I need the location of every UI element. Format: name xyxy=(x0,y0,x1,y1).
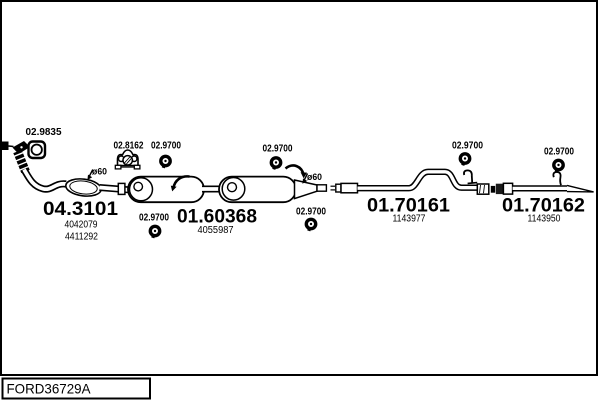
rubber-hanger-icon xyxy=(115,150,140,169)
clamp-icon xyxy=(161,156,170,168)
joint-clamp-block xyxy=(491,186,495,193)
hanger-hook-icon xyxy=(464,170,477,183)
manifold-stub xyxy=(2,142,9,151)
oem-number-label: 4055987 xyxy=(198,225,234,236)
flared-end xyxy=(477,184,489,194)
oem-number-label: 1143977 xyxy=(393,214,426,225)
intermediate-pipe xyxy=(331,170,489,194)
clamp-label: 02.9700 xyxy=(263,144,293,155)
clamp-label: 02.9700 xyxy=(544,147,574,158)
diameter-label: ø60 xyxy=(92,167,107,178)
center-muffler xyxy=(128,177,326,203)
sleeve-collar xyxy=(496,184,504,194)
hanger-label: 02.8162 xyxy=(114,141,144,152)
exhaust-parts-drawing: 02.9835 02.8162 02.9700 02.9700 02.9700 … xyxy=(0,0,600,400)
clamp-label: 02.9700 xyxy=(296,207,326,218)
clamp-label: 02.9700 xyxy=(151,141,181,152)
assembly-arrow-icon xyxy=(286,166,308,179)
clamp-icon xyxy=(150,226,159,238)
diameter-label: ø60 xyxy=(307,172,322,183)
clamp-icon xyxy=(271,158,280,170)
hanger-hook-icon xyxy=(553,172,561,185)
gasket-icon xyxy=(29,142,46,159)
coupling-sleeve xyxy=(341,183,358,192)
oem-number-label: 1143950 xyxy=(528,214,561,225)
clamp-label: 02.9700 xyxy=(452,141,483,152)
tail-pipe xyxy=(491,172,594,194)
oem-number-label: 4411292 xyxy=(65,232,98,243)
part-id-label: 04.3101 xyxy=(43,199,118,220)
slip-collar xyxy=(118,183,125,194)
oem-number-label: 4042079 xyxy=(65,220,98,231)
code-box: FORD36729A xyxy=(3,379,151,399)
clamp-icon xyxy=(306,219,315,231)
clamp-label: 02.9700 xyxy=(139,213,169,224)
gasket-label: 02.9835 xyxy=(26,127,62,138)
clamp-icon xyxy=(554,160,563,172)
clamp-icon xyxy=(460,154,469,166)
drawing-code-label: FORD36729A xyxy=(7,381,92,397)
exhaust-diagram: 02.9835 02.8162 02.9700 02.9700 02.9700 … xyxy=(0,0,600,400)
